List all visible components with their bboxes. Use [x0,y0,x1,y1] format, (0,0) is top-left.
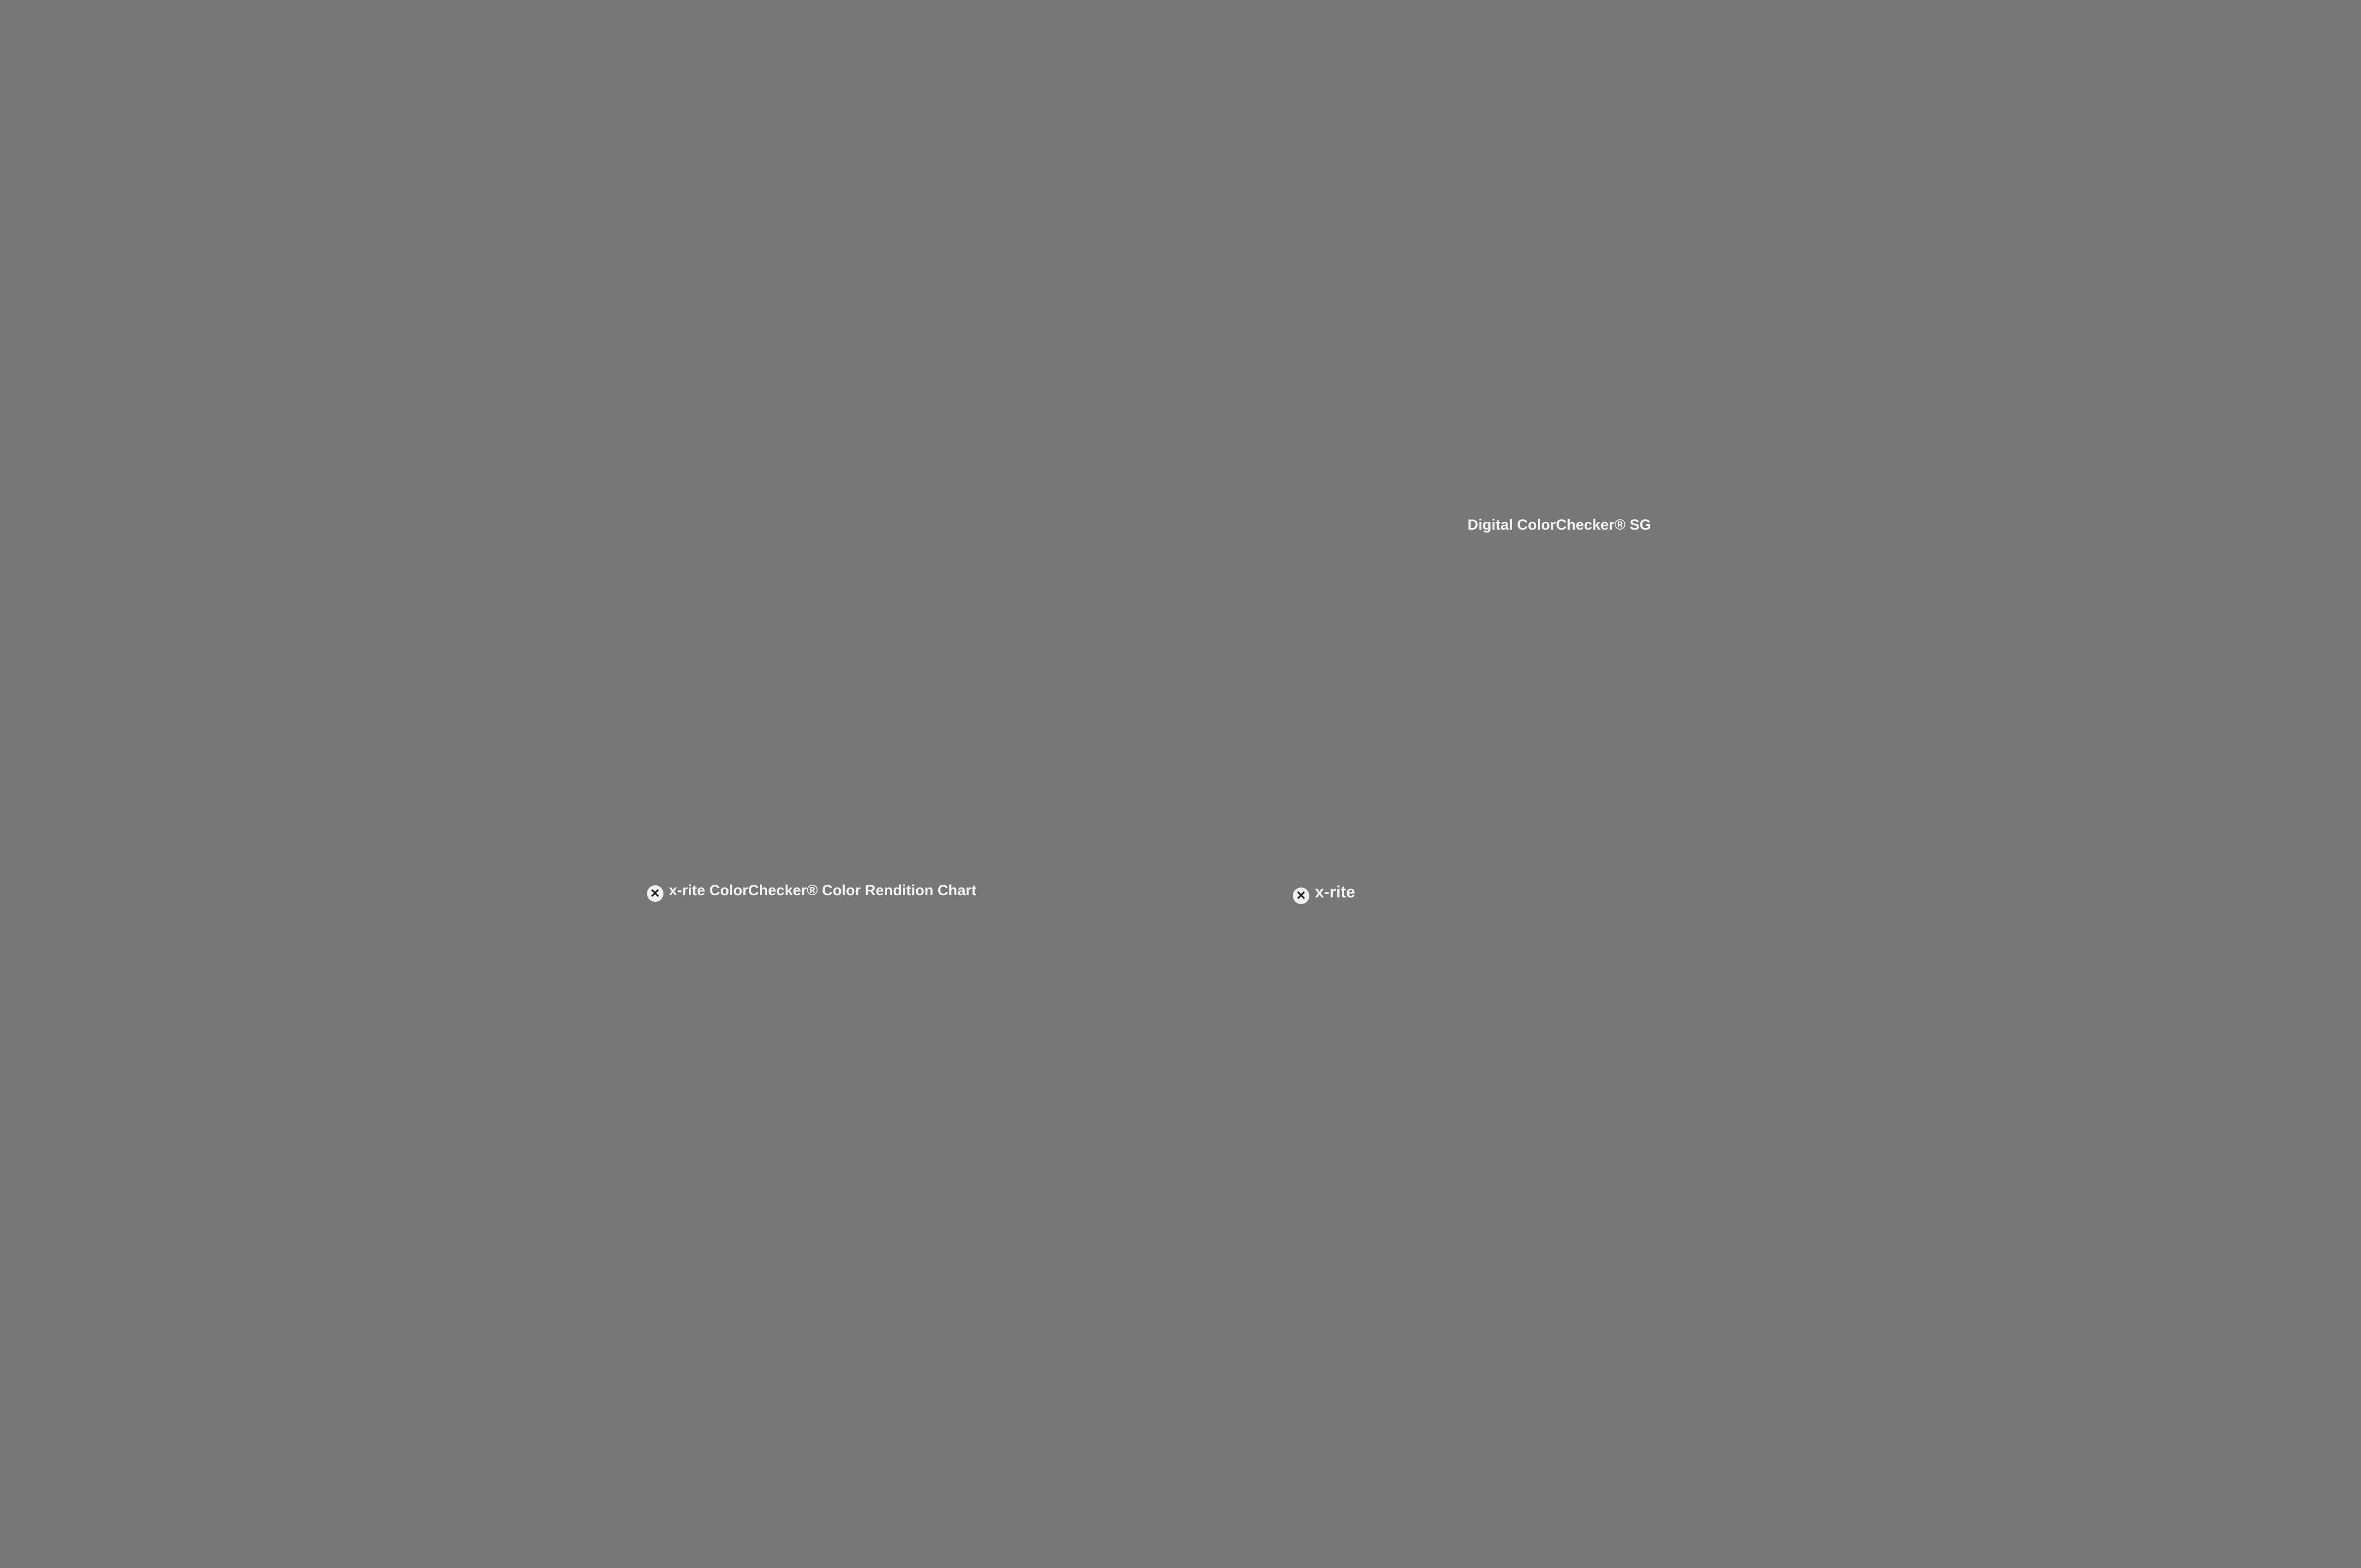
sg-chart-title: Digital ColorChecker® SG [1271,516,1848,533]
sg-logo-text: x-rite [1315,883,1355,901]
resolution-sweep-chart [935,926,1430,1322]
frame-line-band-left [42,21,172,1540]
frame-line-band-bottom [42,1411,2327,1540]
wall-edge-strip [0,0,14,1568]
xrite-logo-icon: ✕ [1293,888,1309,904]
sg-title-text: Digital ColorChecker® SG [1467,516,1651,533]
edge-tick-marks [47,28,60,165]
classic-chart-title: ✕x-rite ColorChecker® Color Rendition Ch… [527,882,1096,902]
edge-tick-marks [2278,28,2291,165]
center-usaf-target [1124,722,1243,841]
frame-line-band-top [42,21,2327,150]
musicians-test-photo [1057,285,1312,496]
edge-tick-marks [2278,1398,2291,1536]
photo-artwork [1057,285,1312,496]
digital-colorchecker-sg-chart: Digital ColorChecker® SG ✕x-rite [1271,509,1848,912]
edge-tick-marks [47,1398,60,1536]
sg-logo: ✕x-rite [1293,883,1355,904]
classic-title-text: ColorChecker® Color Rendition Chart [709,882,976,899]
classic-logo-text: x-rite [669,882,705,899]
colorchecker-classic-chart: ✕x-rite ColorChecker® Color Rendition Ch… [527,509,1096,911]
frame-line-band-right [2197,21,2327,1540]
xrite-logo-icon: ✕ [647,885,663,902]
camera-test-chart-scene: ✕x-rite ColorChecker® Color Rendition Ch… [0,0,2361,1568]
